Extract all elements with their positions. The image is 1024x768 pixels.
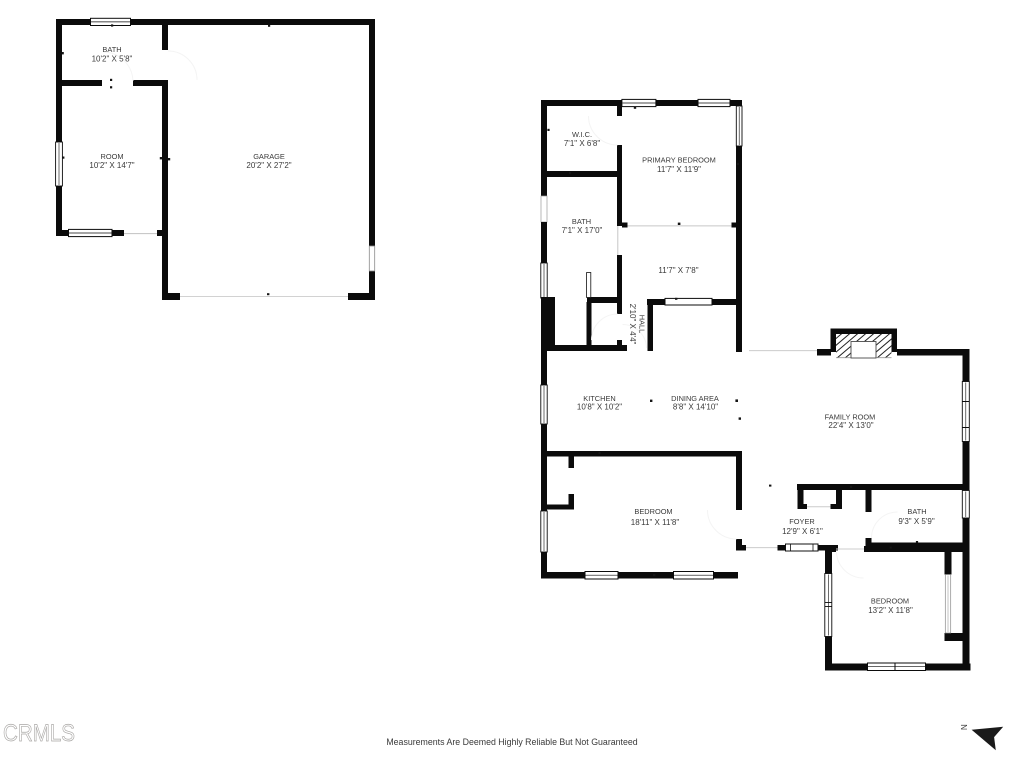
svg-text:10'2" X 5'8": 10'2" X 5'8" (92, 54, 133, 63)
svg-text:BEDROOM: BEDROOM (634, 507, 672, 516)
svg-text:GARAGE: GARAGE (253, 152, 285, 161)
svg-text:HALL: HALL (638, 315, 647, 334)
svg-text:BATH: BATH (102, 45, 121, 54)
svg-text:7'1" X 6'8": 7'1" X 6'8" (564, 139, 600, 148)
svg-text:Measurements Are Deemed Highly: Measurements Are Deemed Highly Reliable … (386, 737, 637, 747)
svg-text:10'8" X 10'2": 10'8" X 10'2" (577, 403, 622, 412)
svg-text:2'10" X 4'4": 2'10" X 4'4" (628, 304, 637, 345)
svg-text:7'1" X 17'0": 7'1" X 17'0" (562, 226, 603, 235)
svg-text:9'3" X 5'9": 9'3" X 5'9" (898, 517, 934, 526)
svg-text:FOYER: FOYER (789, 517, 814, 526)
svg-text:BATH: BATH (572, 217, 591, 226)
svg-text:CRMLS: CRMLS (3, 720, 75, 747)
svg-text:22'4" X 13'0": 22'4" X 13'0" (828, 421, 873, 430)
svg-text:BEDROOM: BEDROOM (871, 596, 909, 605)
svg-text:11'7" X 7'8": 11'7" X 7'8" (658, 266, 698, 275)
svg-text:W.I.C.: W.I.C. (572, 130, 592, 139)
svg-text:10'2" X 14'7": 10'2" X 14'7" (89, 161, 134, 170)
svg-text:20'2" X 27'2": 20'2" X 27'2" (246, 161, 291, 170)
svg-text:PRIMARY BEDROOM: PRIMARY BEDROOM (642, 155, 716, 164)
svg-text:N: N (959, 724, 968, 730)
svg-text:8'8" X 14'10": 8'8" X 14'10" (673, 403, 718, 412)
svg-text:13'2" X 11'8": 13'2" X 11'8" (868, 606, 913, 615)
svg-text:ROOM: ROOM (101, 152, 124, 161)
svg-text:18'11" X 11'8": 18'11" X 11'8" (631, 518, 680, 527)
svg-text:11'7" X 11'9": 11'7" X 11'9" (657, 165, 701, 174)
svg-text:BATH: BATH (907, 507, 926, 516)
svg-text:12'9" X 6'1": 12'9" X 6'1" (782, 527, 823, 536)
